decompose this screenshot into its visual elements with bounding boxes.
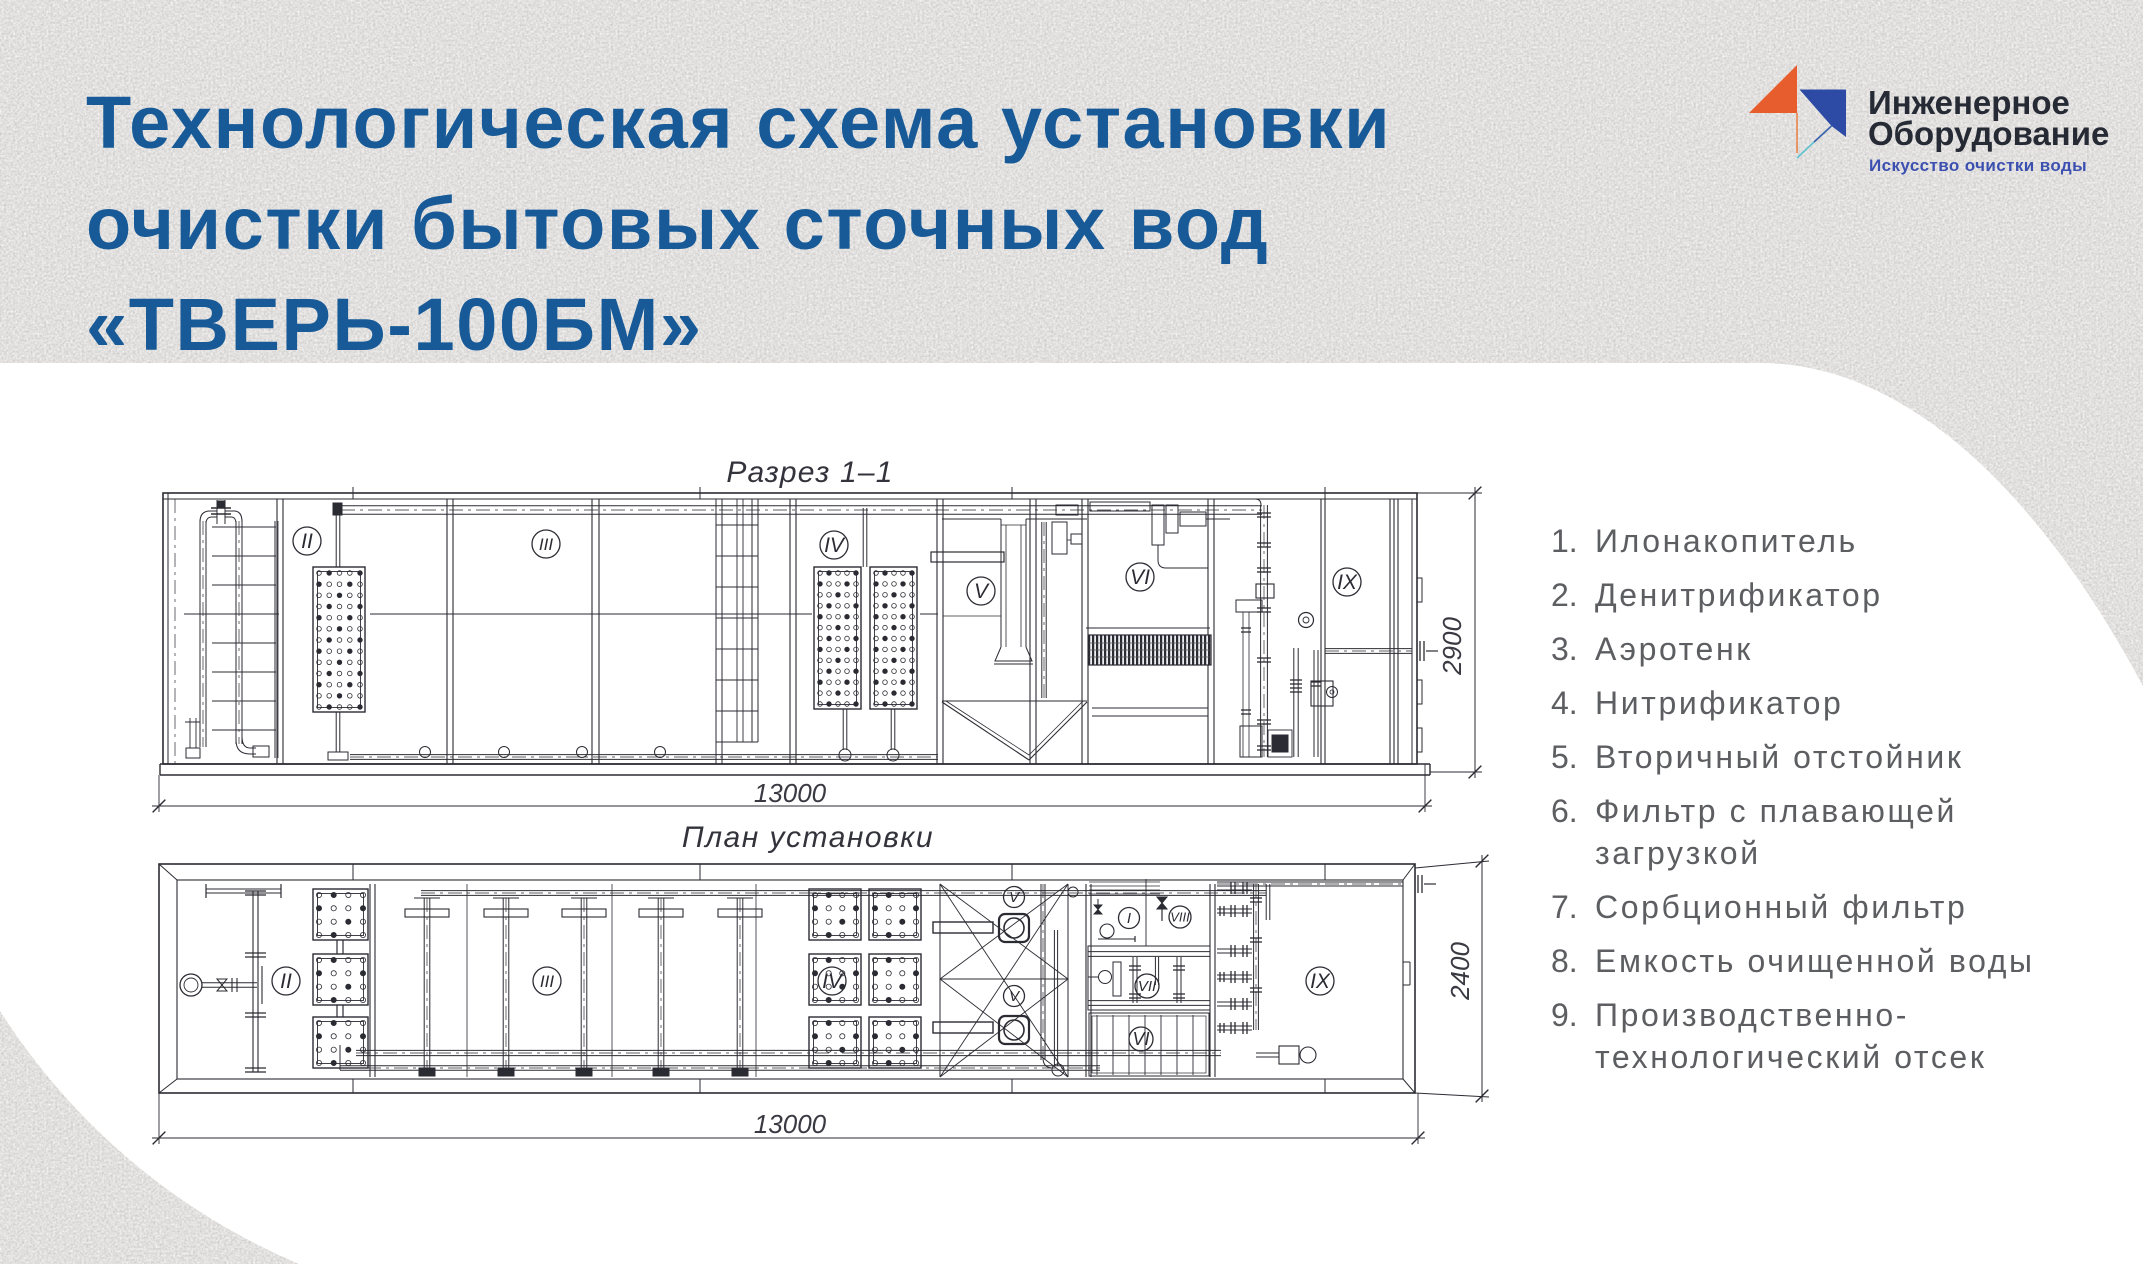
svg-text:VII: VII [1138, 978, 1156, 995]
svg-text:2400: 2400 [1445, 942, 1475, 1001]
svg-text:II: II [280, 970, 292, 993]
svg-text:IX: IX [1310, 970, 1331, 993]
svg-text:13000: 13000 [754, 1109, 827, 1139]
svg-text:VIII: VIII [1170, 909, 1190, 924]
svg-text:VI: VI [1130, 566, 1150, 589]
svg-text:2900: 2900 [1437, 617, 1467, 676]
svg-text:Оборудование: Оборудование [1868, 115, 2109, 152]
svg-text:V: V [974, 580, 990, 603]
svg-text:IX: IX [1337, 571, 1358, 594]
svg-text:План установки: План установки [682, 821, 934, 854]
svg-text:V: V [1009, 988, 1021, 1005]
svg-text:II: II [301, 530, 313, 553]
svg-text:Разрез 1–1: Разрез 1–1 [726, 456, 893, 489]
svg-text:VI: VI [1132, 1029, 1149, 1049]
svg-text:Искусство очистки воды: Искусство очистки воды [1869, 156, 2087, 175]
svg-text:IV: IV [824, 534, 846, 557]
svg-text:IV: IV [822, 970, 844, 993]
svg-text:I: I [1127, 910, 1131, 927]
svg-text:V: V [1009, 889, 1021, 906]
svg-text:III: III [540, 972, 554, 991]
svg-text:13000: 13000 [754, 778, 827, 808]
svg-text:III: III [539, 535, 553, 554]
